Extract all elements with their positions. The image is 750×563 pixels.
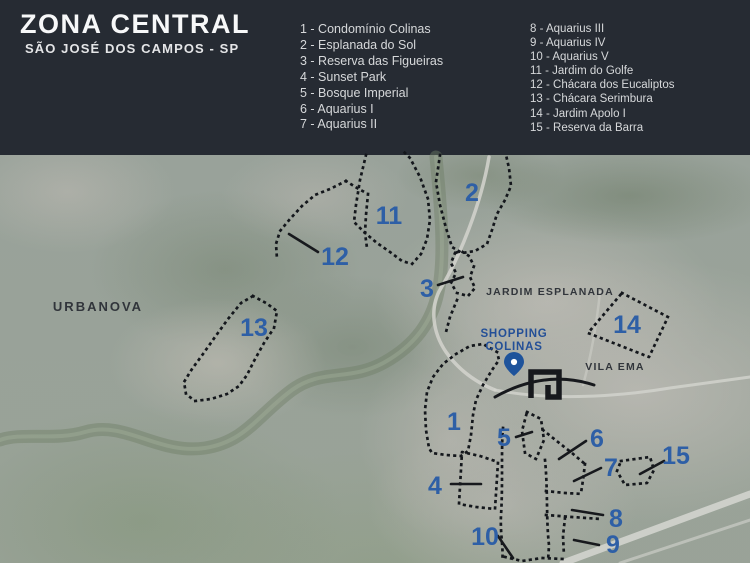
page-subtitle: SÃO JOSÉ DOS CAMPOS - SP	[25, 41, 239, 56]
legend-item-10: 10 - Aquarius V	[530, 50, 674, 64]
legend-item-3: 3 - Reserva das Figueiras	[300, 54, 443, 70]
satellite-map	[0, 155, 750, 563]
legend-column-2: 8 - Aquarius III 9 - Aquarius IV 10 - Aq…	[530, 22, 674, 135]
legend-item-11: 11 - Jardim do Golfe	[530, 64, 674, 78]
legend-item-14: 14 - Jardim Apolo I	[530, 107, 674, 121]
legend-item-2: 2 - Esplanada do Sol	[300, 38, 443, 54]
legend-item-8: 8 - Aquarius III	[530, 22, 674, 36]
legend-item-4: 4 - Sunset Park	[300, 70, 443, 86]
header: ZONA CENTRAL SÃO JOSÉ DOS CAMPOS - SP 1 …	[0, 0, 750, 155]
map-haze-overlay	[0, 155, 750, 563]
legend-column-1: 1 - Condomínio Colinas 2 - Esplanada do …	[300, 22, 443, 133]
legend-item-12: 12 - Chácara dos Eucaliptos	[530, 78, 674, 92]
zona-central-infographic: ZONA CENTRAL SÃO JOSÉ DOS CAMPOS - SP 1 …	[0, 0, 750, 563]
legend-item-7: 7 - Aquarius II	[300, 117, 443, 133]
legend-item-1: 1 - Condomínio Colinas	[300, 22, 443, 38]
legend-item-13: 13 - Chácara Serimbura	[530, 92, 674, 106]
page-title: ZONA CENTRAL	[20, 9, 250, 40]
legend-item-6: 6 - Aquarius I	[300, 102, 443, 118]
legend-item-9: 9 - Aquarius IV	[530, 36, 674, 50]
legend-item-15: 15 - Reserva da Barra	[530, 121, 674, 135]
legend-item-5: 5 - Bosque Imperial	[300, 86, 443, 102]
